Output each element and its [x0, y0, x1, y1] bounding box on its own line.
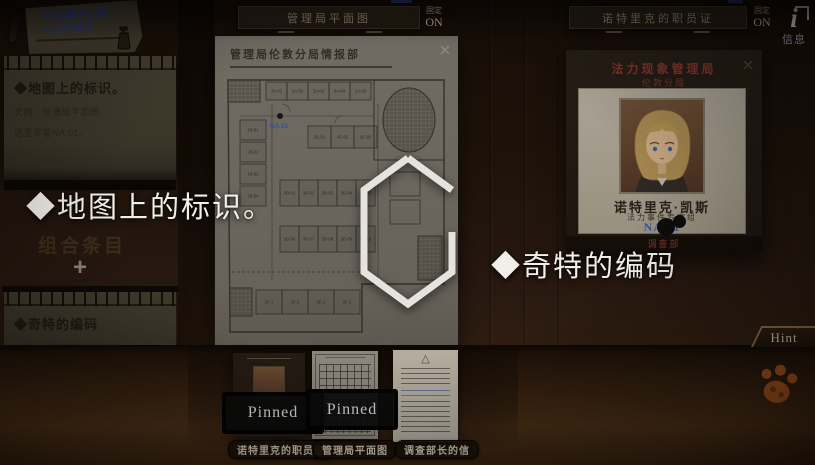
room-label: 3D-02 — [303, 191, 315, 196]
add-note-button[interactable]: + — [66, 256, 94, 282]
letter-text-lines — [401, 401, 450, 435]
pin-toggle-floor-plan[interactable]: 固定 ON — [420, 6, 448, 27]
room-label: 3C-01 — [314, 135, 326, 140]
room-label: 1B-01 — [247, 128, 259, 133]
room-label: 3A-02 — [292, 89, 304, 94]
screen-glitch-1 — [391, 0, 412, 3]
info-label: 信息 — [779, 31, 809, 47]
note1-body: 这里写着NA 01。 — [4, 118, 176, 139]
map-marker-code: NA 01 — [270, 123, 289, 130]
shelf-label-floor-plan: 管理局平面图 — [313, 440, 397, 459]
room-label: 1F-1 — [265, 300, 274, 305]
room-label: 3A-03 — [313, 89, 325, 94]
room-label: 2F-1 — [317, 300, 326, 305]
room-label: 1B-02 — [247, 150, 259, 155]
paw-print-icon — [753, 357, 803, 412]
caption-map-mark: ◆地图上的标识。 — [26, 184, 274, 226]
tab-floor-plan[interactable]: 管理局平面图 — [237, 5, 421, 30]
room-label: 3C-03 — [360, 135, 372, 140]
portrait-photo — [621, 100, 703, 192]
id-card-paper: 诺特里克·凯斯 法力事件专案组 NA 01 — [578, 88, 746, 234]
desk-grain-right — [455, 0, 573, 348]
letter-text-lines-blue — [401, 390, 450, 399]
note-card-map-mark[interactable]: ◆地图上的标识。 文档：管理局平面图 这里写着NA 01。 — [4, 56, 176, 180]
close-id-badge-button[interactable]: × — [742, 56, 754, 74]
thumbnail-letter[interactable]: △ — [393, 350, 458, 442]
pin-toggle-id-badge[interactable]: 固定 ON — [748, 6, 776, 27]
sticky-line1: 转至案件记录 — [41, 8, 107, 22]
hint-button[interactable]: Hint — [751, 326, 815, 347]
tab-dash — [694, 31, 710, 33]
tab-id-badge-label: 诺特里克的职员证 — [602, 10, 714, 26]
room-label: 3A-01 — [271, 89, 283, 94]
id-badge-document[interactable]: 法力现象管理局 伦敦分局 × 诺特里克·凯斯 法力事件专案组 NA 01 — [566, 50, 762, 252]
pin-state: ON — [748, 17, 776, 27]
tab-dash — [606, 31, 622, 33]
letter-text-lines — [401, 368, 450, 388]
sticky-line2: &打印菜单 — [42, 22, 94, 36]
note1-doc: 文档：管理局平面图 — [4, 97, 176, 118]
room-label: 1F-2 — [291, 300, 300, 305]
hint-label: Hint — [770, 330, 797, 346]
room-label: 3D-03 — [322, 191, 334, 196]
tab-dash — [278, 31, 294, 33]
info-button[interactable]: i 信息 — [779, 5, 809, 51]
spiral-binding — [4, 292, 176, 306]
spray-bottle-icon — [115, 26, 133, 50]
tab-id-badge[interactable]: 诺特里克的职员证 — [568, 5, 748, 30]
pinned-stamp: Pinned — [306, 389, 398, 430]
screen-glitch-2 — [728, 0, 743, 3]
close-floor-plan-button[interactable]: × — [439, 41, 451, 59]
title-underline — [230, 66, 392, 68]
room-label: 3D-08 — [322, 237, 334, 242]
tab-dash — [366, 31, 382, 33]
room-label: 3D-01 — [284, 191, 296, 196]
redaction-dot — [673, 215, 686, 228]
game-screen: 转至案件记录 &打印菜单 管理局平面图 固定 ON 诺特里克的职员证 固定 ON… — [0, 0, 815, 465]
pin-state: ON — [420, 17, 448, 27]
room-label: 3A-04 — [334, 89, 346, 94]
thumb-plan-title — [325, 357, 365, 360]
link-hexagon-icon — [352, 146, 464, 318]
warning-triangle-icon: △ — [393, 353, 458, 365]
room-label: 3C-02 — [337, 135, 349, 140]
id-org: 法力现象管理局 — [566, 60, 762, 77]
spiral-binding — [4, 56, 176, 70]
desk-plank-left — [178, 0, 214, 350]
shelf-label-letter: 调查部长的信 — [395, 440, 479, 459]
info-corner-bracket — [795, 6, 809, 20]
room-label: 1A-03 — [355, 89, 367, 94]
caption-strange-code: ◆奇特的编码 — [491, 243, 677, 285]
thumb-text-lines — [247, 358, 291, 363]
pen-icon — [8, 6, 22, 43]
note1-title: ◆地图上的标识。 — [4, 70, 176, 97]
note2-title: ◆奇特的编码 — [4, 306, 176, 333]
tab-floor-plan-label: 管理局平面图 — [287, 10, 371, 26]
floor-plan-title: 管理局伦敦分局情报部 — [230, 46, 360, 62]
room-label: 1B-03 — [247, 172, 259, 177]
room-label: 3D-06 — [284, 237, 296, 242]
room-label: 2F-2 — [343, 300, 352, 305]
room-label: 3D-07 — [303, 237, 315, 242]
